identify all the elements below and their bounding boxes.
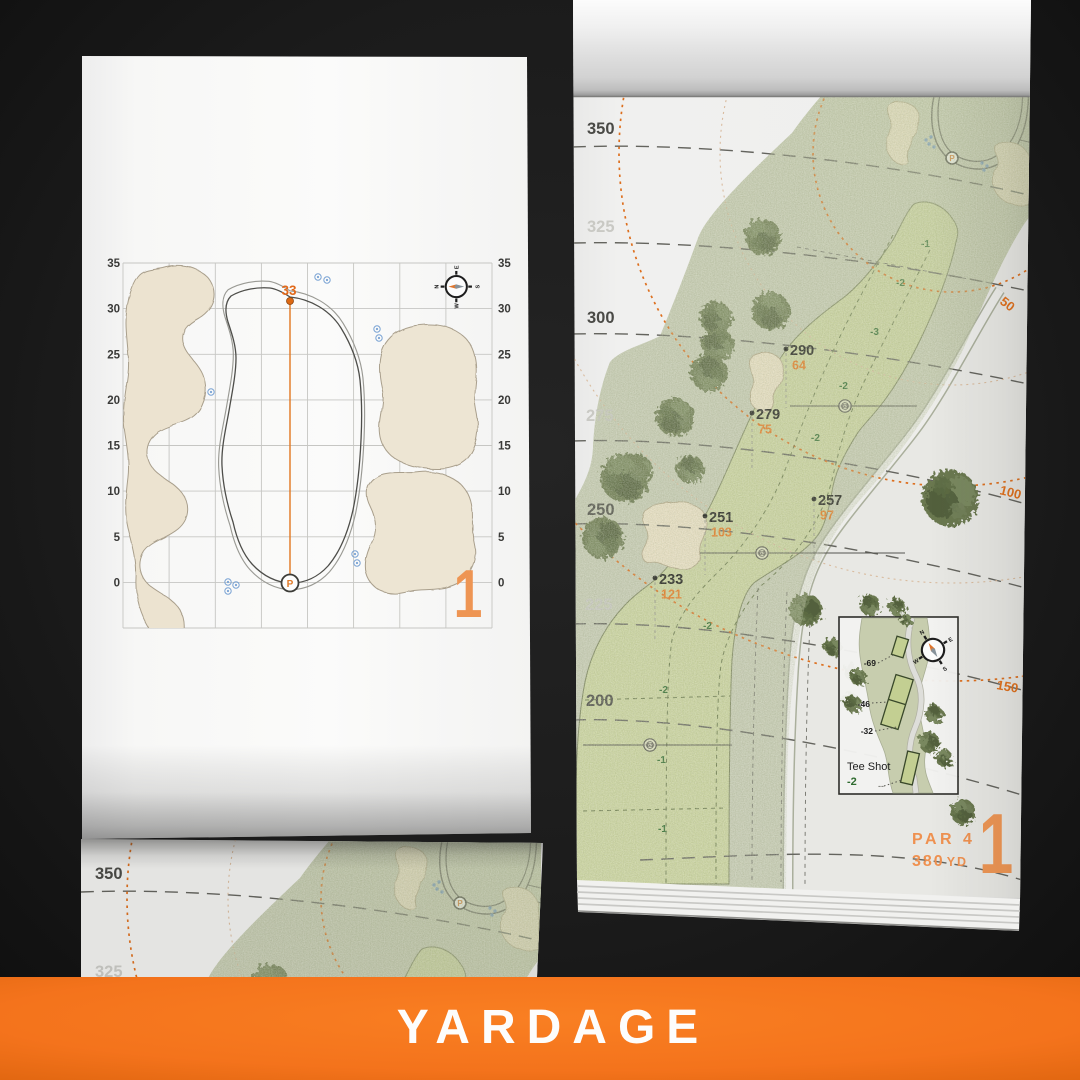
svg-text:10: 10 <box>498 486 511 498</box>
svg-text:10: 10 <box>107 486 120 498</box>
svg-text:5: 5 <box>114 532 121 544</box>
svg-text:YARDAGE: YARDAGE <box>397 1001 710 1054</box>
svg-text:25: 25 <box>498 349 511 361</box>
svg-text:20: 20 <box>107 395 120 407</box>
svg-text:30: 30 <box>107 304 120 316</box>
svg-text:0: 0 <box>114 577 120 589</box>
svg-text:30: 30 <box>498 304 511 316</box>
svg-text:15: 15 <box>498 441 511 453</box>
svg-text:0: 0 <box>498 577 504 589</box>
svg-text:15: 15 <box>107 441 120 453</box>
svg-text:35: 35 <box>107 258 120 270</box>
svg-text:5: 5 <box>498 532 505 544</box>
svg-text:P: P <box>287 579 294 590</box>
svg-text:20: 20 <box>498 395 511 407</box>
svg-text:1: 1 <box>454 555 483 632</box>
svg-text:33: 33 <box>281 283 297 298</box>
svg-text:25: 25 <box>107 349 120 361</box>
svg-text:35: 35 <box>498 258 511 270</box>
